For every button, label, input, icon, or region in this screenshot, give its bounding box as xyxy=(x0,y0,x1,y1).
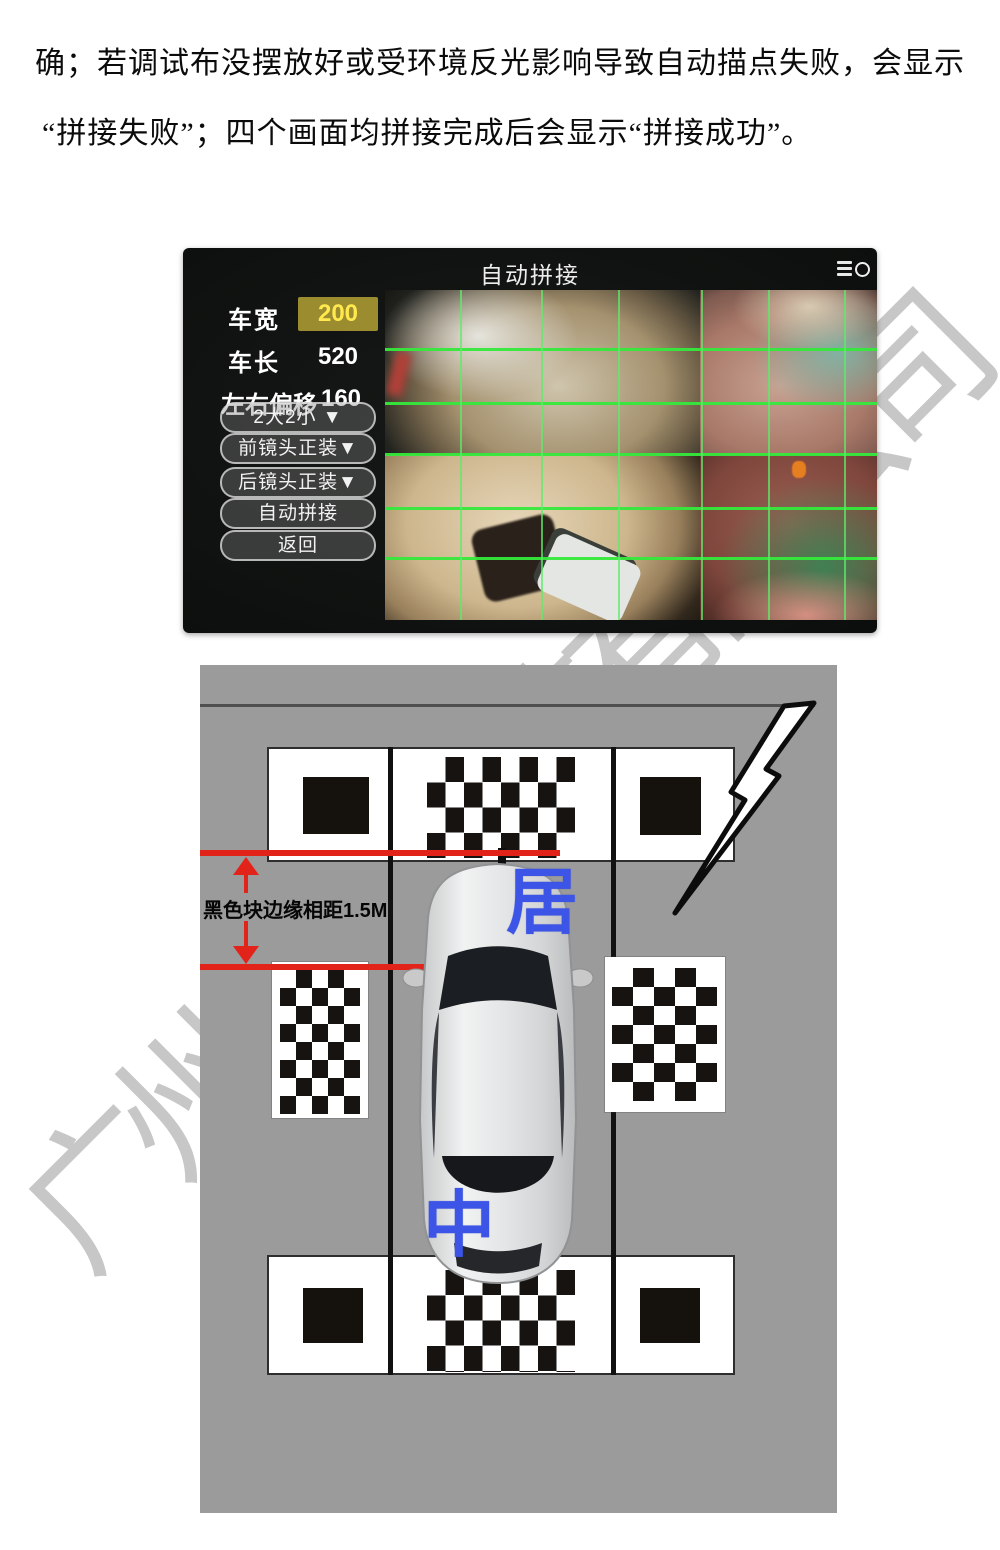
black-square-marker xyxy=(640,1288,700,1343)
checkerboard-right xyxy=(612,968,717,1101)
grid-line-horizontal xyxy=(385,507,877,510)
grid-line-horizontal xyxy=(385,557,877,560)
paragraph-line-1: 确；若调试布没摆放好或受环境反光影响导致自动描点失败，会显示 xyxy=(35,38,975,82)
auto-stitch-screen: 自动拼接 车宽 200 车长 520 左右偏移 160 2大2小 ▼ 前镜头正装… xyxy=(183,248,877,633)
arrow-shaft xyxy=(244,921,248,947)
field-value-vehicle-width[interactable]: 200 xyxy=(298,297,378,331)
distance-label: 黑色块边缘相距1.5M xyxy=(203,894,387,923)
red-reference-line-top xyxy=(200,850,560,856)
field-value-vehicle-length[interactable]: 520 xyxy=(298,343,378,371)
checkerboard-front xyxy=(427,757,575,858)
checkerboard-left xyxy=(280,970,360,1114)
grid-line-horizontal xyxy=(385,453,877,456)
menu-bar xyxy=(837,261,852,264)
field-label-vehicle-length: 车长 xyxy=(228,343,280,378)
grid-line-vertical xyxy=(541,290,543,620)
back-button[interactable]: 返回 xyxy=(220,530,376,561)
grid-line-vertical xyxy=(460,290,462,620)
dropdown-front-camera-mount[interactable]: 前镜头正装▼ xyxy=(220,433,376,464)
arrow-down-icon xyxy=(233,946,259,964)
screen-title: 自动拼接 xyxy=(183,256,877,290)
camera-detail xyxy=(386,351,412,398)
centered-marker-bottom: 中 xyxy=(423,1190,495,1262)
menu-icon[interactable] xyxy=(837,260,871,278)
calibration-layout-diagram: 黑色块边缘相距1.5M 居 中 xyxy=(200,665,837,1513)
guide-line-left xyxy=(388,747,393,1375)
field-label-vehicle-width: 车宽 xyxy=(228,300,280,335)
paragraph-line-2: “拼接失败”；四个画面均拼接完成后会显示“拼接成功”。 xyxy=(42,108,982,152)
grid-line-vertical xyxy=(701,290,703,620)
black-square-marker xyxy=(303,777,369,834)
fisheye-view-right xyxy=(700,290,877,455)
grid-line-horizontal xyxy=(385,402,877,405)
dropdown-2big2small[interactable]: 2大2小 ▼ xyxy=(220,402,376,433)
grid-line-vertical xyxy=(618,290,620,620)
left-checkerboard-panel xyxy=(272,962,368,1118)
manual-page: 广州电子科技有限公司 确；若调试布没摆放好或受环境反光影响导致自动描点失败，会显… xyxy=(0,0,1000,1550)
menu-bar xyxy=(837,273,852,276)
centered-marker-top: 居 xyxy=(506,867,578,939)
pointer-arrow-icon xyxy=(655,693,825,923)
menu-bar xyxy=(837,267,852,270)
dropdown-rear-camera-mount[interactable]: 后镜头正装▼ xyxy=(220,467,376,498)
camera-preview-panel xyxy=(385,290,877,620)
menu-ring xyxy=(855,262,870,277)
auto-stitch-button[interactable]: 自动拼接 xyxy=(220,498,376,529)
fisheye-view-rear xyxy=(700,455,877,620)
arrow-shaft xyxy=(244,873,248,893)
grid-line-horizontal xyxy=(385,348,877,351)
black-square-marker xyxy=(303,1288,363,1343)
right-checkerboard-panel xyxy=(605,957,725,1112)
grid-line-vertical xyxy=(768,290,770,620)
grid-line-vertical xyxy=(844,290,846,620)
camera-detail xyxy=(792,461,806,478)
